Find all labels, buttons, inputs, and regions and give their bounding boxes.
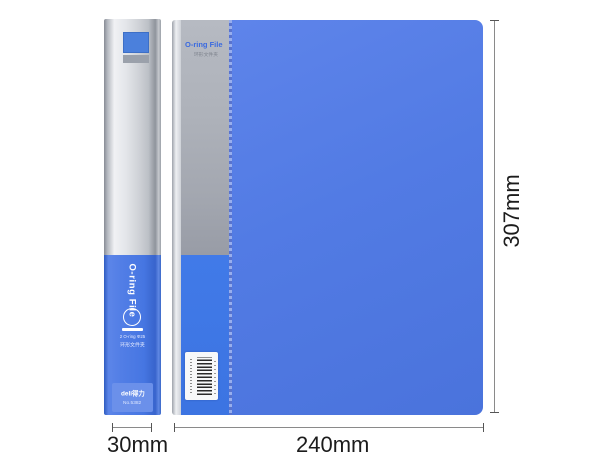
dimension-tick: [151, 423, 152, 432]
spine-spec-line1: 2 O-ring Φ25: [117, 334, 148, 339]
binder-front-view: O-ring File 环形文件夹: [172, 20, 483, 415]
cover-title: O-ring File: [185, 40, 229, 49]
product-dimension-image: O-ring File 2 O-ring Φ25 环形文件夹 deli得力 No…: [0, 0, 600, 469]
barcode-icon: [197, 357, 212, 395]
o-ring-base: [122, 328, 143, 331]
o-ring-icon: [122, 308, 143, 334]
brand-logo-block: deli得力 No.5382: [112, 383, 153, 412]
dimension-tick: [174, 423, 175, 432]
spine-spec-text: 2 O-ring Φ25 环形文件夹: [104, 334, 161, 354]
dimension-tick: [490, 412, 499, 413]
spine-spec-line2: 环形文件夹: [117, 341, 148, 348]
cover-crease-line: [229, 20, 232, 415]
barcode-number-text: [214, 358, 216, 394]
dimension-tick: [112, 423, 113, 432]
cover-height-dimension-line: [494, 20, 495, 413]
spine-width-label: 30mm: [107, 432, 168, 458]
cover-height-label: 307mm: [499, 174, 525, 247]
spine-label-slot: [123, 55, 149, 63]
cover-width-label: 240mm: [296, 432, 369, 458]
o-ring-circle: [123, 308, 141, 326]
barcode-label: [185, 352, 218, 400]
binder-spine-view: O-ring File 2 O-ring Φ25 环形文件夹 deli得力 No…: [104, 19, 161, 415]
cover-subtitle: 环形文件夹: [194, 51, 215, 58]
spine-width-dimension-line: [112, 427, 152, 428]
cover-width-dimension-line: [174, 427, 484, 428]
spine-label-window: [123, 32, 149, 53]
dimension-tick: [483, 423, 484, 432]
brand-logo-text: deli得力: [121, 389, 145, 398]
barcode-side-text: [190, 359, 192, 393]
cover-edge-highlight: [172, 20, 181, 415]
cover-main-panel: [232, 20, 483, 415]
dimension-tick: [490, 20, 499, 21]
model-number: No.5382: [123, 400, 141, 405]
